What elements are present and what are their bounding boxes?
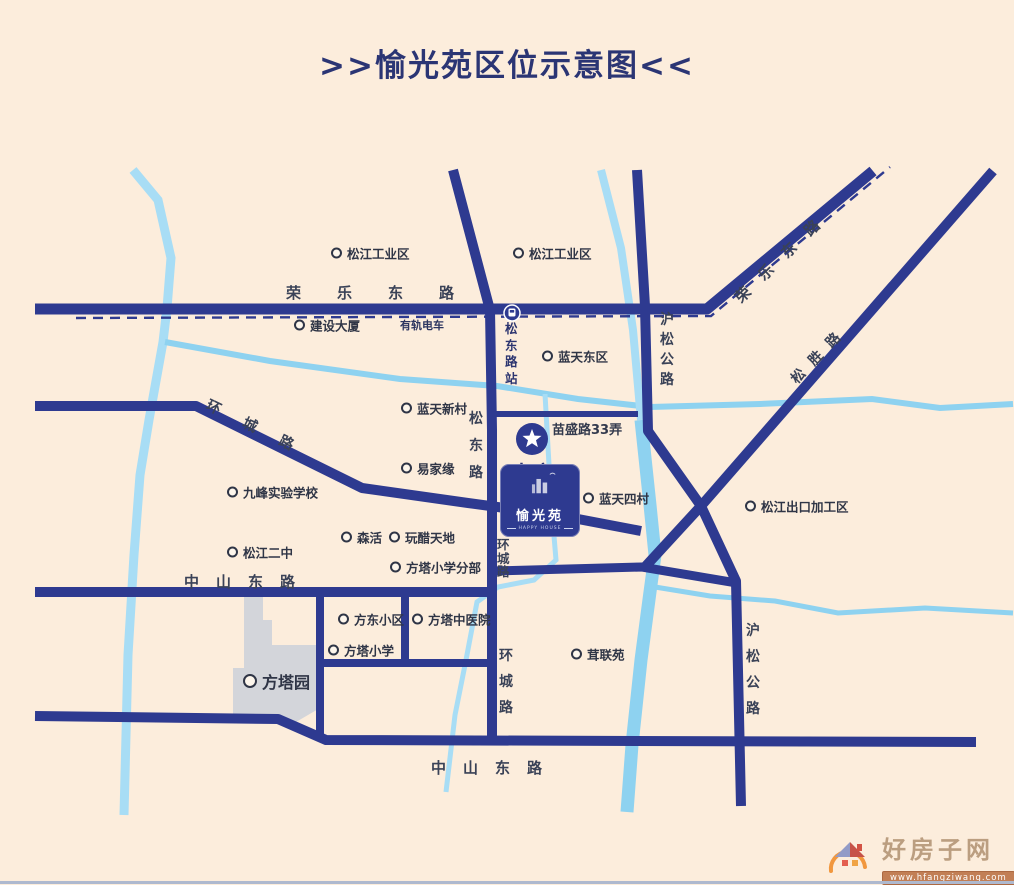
poi-lantian-sicun: 蓝天四村	[583, 489, 649, 508]
bottom-divider	[0, 881, 1014, 884]
poi-circle-icon	[513, 248, 524, 259]
poi-lantian-xincun: 蓝天新村	[401, 399, 467, 418]
road-label-zhongshan-east-lower: 中山东路	[431, 757, 559, 778]
poi-ronglianyuan: 茸联苑	[571, 645, 625, 664]
poi-fangta-park: 方塔园	[243, 669, 310, 693]
poi-songjiang-no2-school: 松江二中	[227, 543, 293, 562]
poi-jiufeng-school: 九峰实验学校	[227, 483, 318, 502]
tram-station-icon	[504, 305, 520, 321]
poi-lantian-east: 蓝天东区	[542, 347, 608, 366]
poi-circle-icon	[412, 614, 423, 625]
poi-circle-icon	[331, 248, 342, 259]
poi-fangdong-xiaoqu: 方东小区	[338, 610, 404, 629]
road-label-huancheng-middle: 环城路	[497, 538, 510, 579]
project-logo-name: 愉光苑	[516, 505, 564, 524]
road-label-songdong: 松东路	[469, 406, 483, 487]
road-label-zhongshan-east-upper: 中山东路	[184, 571, 312, 592]
project-logo: 愉光苑 HAPPY HOUSE	[500, 464, 580, 537]
poi-circle-icon	[571, 649, 582, 660]
poi-circle-icon	[243, 674, 257, 688]
poi-songjiang-industrial-west: 松江工业区	[331, 244, 410, 263]
tram-line-label: 有轨电车	[400, 317, 444, 333]
poi-fangta-tcm-hospital: 方塔中医院	[412, 610, 491, 629]
river-northeast-lower	[627, 420, 655, 812]
river-east-fork	[655, 587, 1013, 613]
road-label-huancheng-south: 环城路	[499, 643, 513, 721]
poi-circle-icon	[745, 501, 756, 512]
site-watermark: 好房子网 www.hfangziwang.com	[822, 830, 1014, 885]
fangta-park-area	[233, 597, 320, 722]
poi-circle-icon	[338, 614, 349, 625]
location-map: >>愉光苑区位示意图<< 荣乐东路 荣乐东路 松胜路 环城路 沪松公路 沪松公路…	[0, 0, 1014, 885]
watermark-site-name: 好房子网	[882, 830, 1014, 865]
poi-wanku-tiandi: 玩醋天地	[389, 528, 455, 547]
road-label-husong-lower: 沪松公路	[746, 618, 760, 722]
poi-songjiang-industrial-east: 松江工业区	[513, 244, 592, 263]
project-logo-subtitle: HAPPY HOUSE	[507, 526, 574, 531]
poi-circle-icon	[401, 403, 412, 414]
page-title: >>愉光苑区位示意图<<	[0, 40, 1014, 85]
tram-station-label: 松东路站	[505, 321, 518, 387]
poi-circle-icon	[227, 487, 238, 498]
poi-fangta-primary: 方塔小学	[328, 641, 394, 660]
road-label-miaosheng-lane: 苗盛路33弄	[552, 419, 622, 438]
poi-circle-icon	[389, 532, 400, 543]
crescent-moon-buildings-icon	[520, 470, 560, 504]
road-label-husong-upper: 沪松公路	[660, 310, 674, 390]
poi-fangta-primary-branch: 方塔小学分部	[390, 558, 481, 577]
poi-circle-icon	[341, 532, 352, 543]
poi-yijiayuan: 易家缘	[401, 459, 455, 478]
poi-circle-icon	[401, 463, 412, 474]
poi-circle-icon	[583, 493, 594, 504]
poi-circle-icon	[328, 645, 339, 656]
poi-circle-icon	[227, 547, 238, 558]
poi-songjiang-export-zone: 松江出口加工区	[745, 497, 849, 516]
poi-circle-icon	[390, 562, 401, 573]
poi-circle-icon	[294, 320, 305, 331]
road-label-rongle-east-horizontal: 荣乐东路	[286, 282, 490, 303]
poi-jianshe-tower: 建设大厦	[294, 316, 360, 335]
poi-circle-icon	[542, 351, 553, 362]
house-logo-icon	[822, 833, 874, 883]
poi-senhuo: 森活	[341, 528, 382, 547]
